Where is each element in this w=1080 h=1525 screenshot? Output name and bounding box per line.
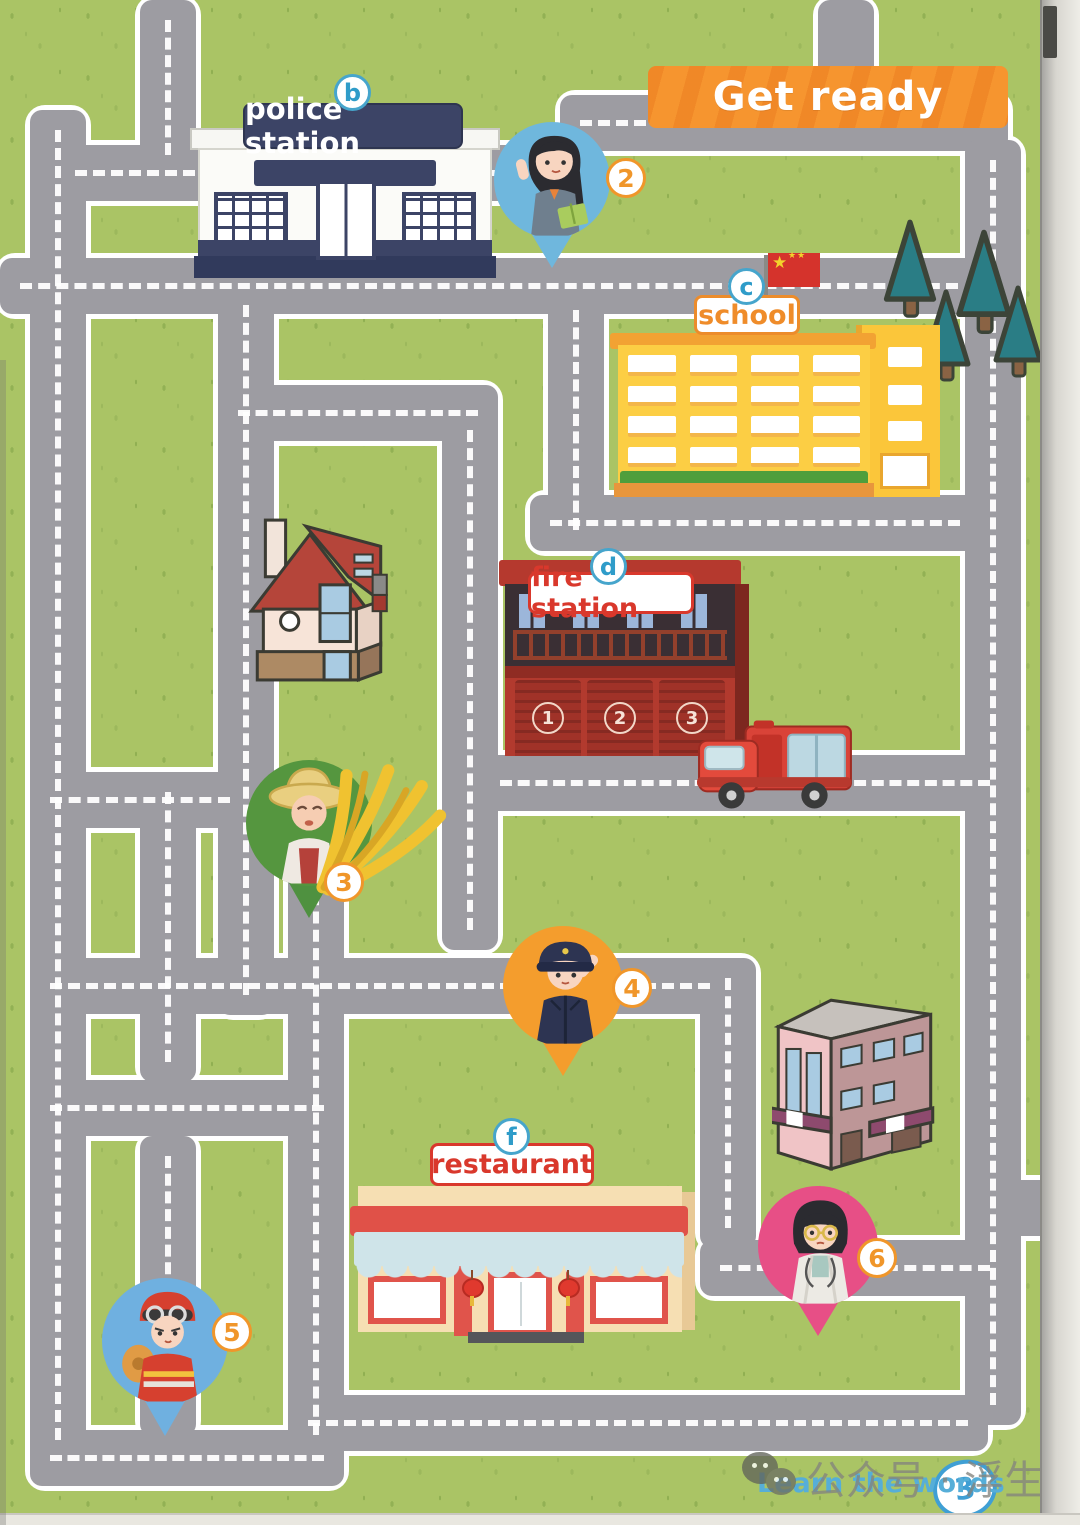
page-edge	[0, 1513, 1080, 1525]
number-badge-2: 2	[606, 158, 646, 198]
lantern-icon	[558, 1278, 580, 1298]
watermark-text: 公众号 · 浮生英语	[806, 1448, 1080, 1506]
fire-garage-door: 1	[515, 680, 581, 756]
firefighter-avatar	[102, 1278, 228, 1404]
house-building	[243, 512, 395, 684]
fire-balcony	[513, 630, 727, 660]
number-badge-6: 6	[857, 1238, 897, 1278]
teacher-avatar	[494, 122, 610, 238]
number-badge-4: 4	[612, 968, 652, 1008]
apartment-building	[772, 988, 940, 1176]
town-map-page: Get ready police station b ★ ★★	[0, 0, 1080, 1525]
letter-badge-f: f	[493, 1118, 530, 1155]
letter-badge-d: d	[590, 548, 627, 585]
wechat-icon	[742, 1452, 800, 1502]
wheat-sheaf	[288, 740, 461, 908]
teacher-pin	[494, 122, 610, 238]
page-edge	[0, 360, 6, 1525]
police-window	[214, 192, 288, 244]
letter-badge-b: b	[334, 74, 371, 111]
fire-garage-door: 2	[587, 680, 653, 756]
school-windows	[628, 355, 860, 467]
restaurant-window	[368, 1276, 446, 1324]
get-ready-banner: Get ready	[648, 66, 1008, 128]
lantern-icon	[462, 1278, 484, 1298]
tree-icon	[988, 284, 1048, 384]
restaurant-awning	[354, 1232, 684, 1266]
page-edge	[1040, 0, 1080, 1525]
police-door	[316, 180, 376, 260]
police-officer-pin	[503, 926, 623, 1046]
watermark: 公众号 · 浮生英语	[742, 1448, 1080, 1506]
number-badge-5: 5	[212, 1312, 252, 1352]
banner-title: Get ready	[713, 74, 944, 120]
page-edge-mark	[1043, 6, 1057, 58]
restaurant-door	[488, 1272, 552, 1336]
police-officer-avatar	[503, 926, 623, 1046]
police-window	[402, 192, 476, 244]
restaurant-window	[590, 1276, 668, 1324]
china-flag-icon: ★ ★★	[768, 253, 820, 287]
firefighter-pin	[102, 1278, 228, 1404]
fire-truck	[695, 718, 857, 812]
letter-badge-c: c	[728, 268, 765, 305]
school-building	[618, 325, 940, 497]
number-badge-3: 3	[324, 862, 364, 902]
